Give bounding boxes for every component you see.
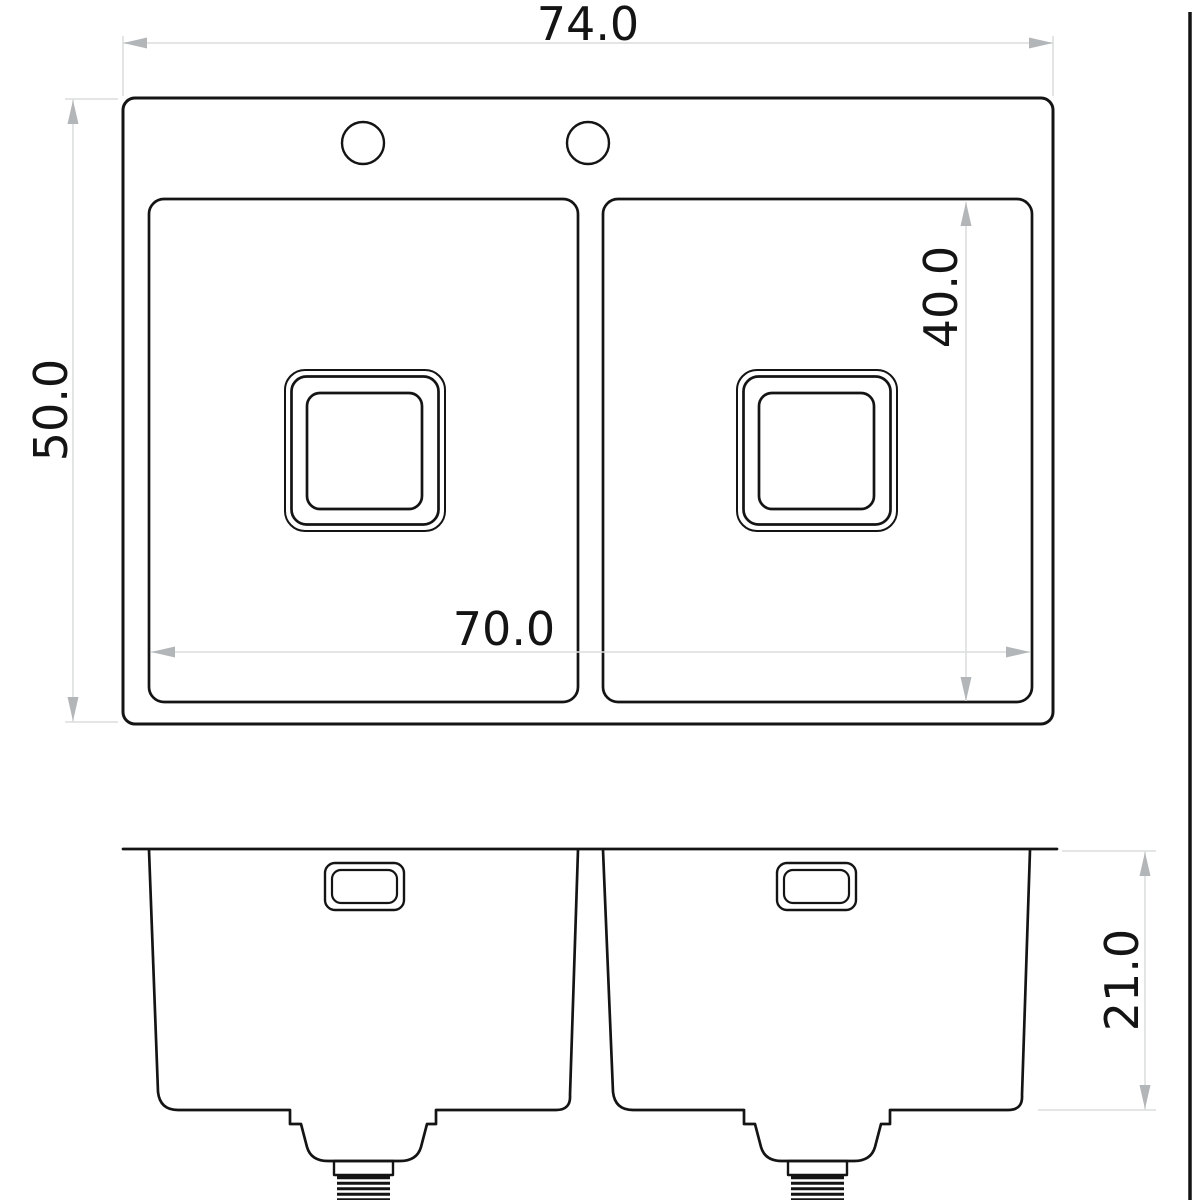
side-view: [123, 849, 1057, 1200]
drain-pipe-left: [334, 1161, 393, 1200]
dim-70-arrow-right: [1006, 647, 1030, 658]
dim-21-arrow-bottom: [1140, 1085, 1151, 1109]
dim-40-label: 40.0: [914, 246, 968, 348]
drain-left: [285, 370, 445, 531]
drain-right-mid: [744, 377, 891, 525]
dim-74-label: 74.0: [537, 0, 639, 51]
dim-21-arrow-top: [1140, 852, 1151, 876]
dim-bowls-span: 70.0: [151, 602, 1030, 658]
dim-overall-depth: 50.0: [24, 99, 118, 722]
dimensions: 74.0 50.0 40.0 70.0: [24, 0, 1156, 1110]
bowl-left-profile: [149, 850, 578, 1161]
dim-74-arrow-right: [1029, 38, 1053, 49]
sink-dimension-drawing: 74.0 50.0 40.0 70.0: [0, 0, 1200, 1200]
bowl-right-profile: [603, 850, 1030, 1161]
dim-40-arrow-bottom: [961, 677, 972, 701]
dim-40-arrow-top: [961, 202, 972, 226]
overflow-left: [325, 863, 404, 910]
drain-right-inner: [759, 393, 874, 509]
dim-overall-width: 74.0: [123, 0, 1053, 96]
overflow-left-inner: [332, 870, 397, 903]
dim-50-arrow-top: [68, 100, 79, 124]
drain-pipe-right: [788, 1161, 847, 1200]
sink-outer-rim: [123, 98, 1053, 724]
drain-left-inner: [307, 393, 422, 509]
drain-right: [737, 370, 897, 531]
top-view: [123, 98, 1053, 724]
overflow-right: [777, 863, 856, 910]
drain-left-collar: [334, 1161, 393, 1175]
overflow-right-inner: [784, 870, 849, 903]
dim-50-label: 50.0: [24, 359, 78, 461]
dim-bowl-height: 21.0: [1038, 851, 1156, 1110]
dim-21-label: 21.0: [1095, 929, 1149, 1031]
dim-70-arrow-left: [151, 647, 175, 658]
faucet-hole-left: [342, 122, 384, 164]
faucet-hole-right: [567, 122, 609, 164]
dim-50-arrow-bottom: [68, 697, 79, 721]
dim-70-label: 70.0: [453, 602, 555, 656]
dim-bowl-depth: 40.0: [914, 202, 972, 701]
dim-74-arrow-left: [123, 38, 147, 49]
drawing-canvas: 74.0 50.0 40.0 70.0: [0, 0, 1200, 1200]
drain-left-mid: [292, 377, 439, 525]
drain-right-collar: [788, 1161, 847, 1175]
